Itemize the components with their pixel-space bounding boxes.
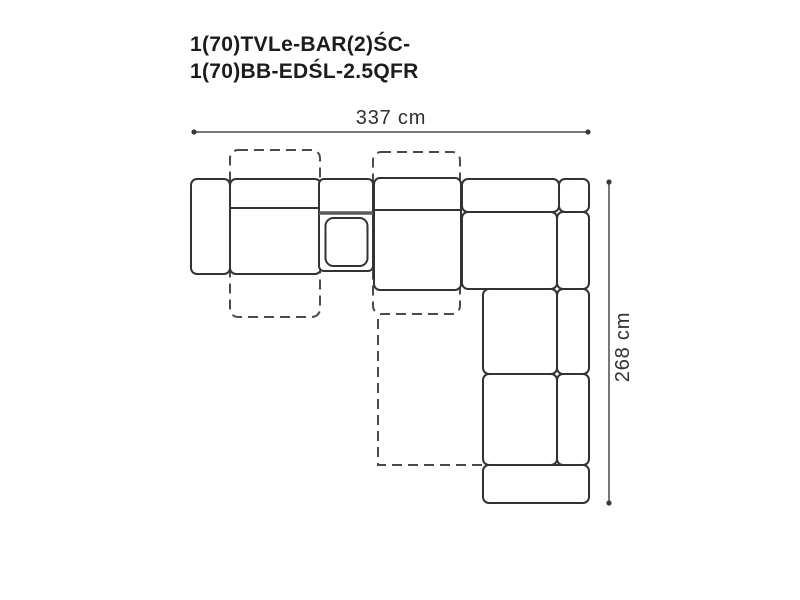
height-dimension xyxy=(606,179,611,505)
chaise-seat-2 xyxy=(483,374,557,465)
corner-backrest-right xyxy=(557,212,589,289)
height-dimension-start-dot xyxy=(606,179,611,184)
seat-module-1 xyxy=(230,179,321,274)
chaise-backrest-2 xyxy=(557,374,589,465)
left-armrest xyxy=(191,179,230,274)
chaise-seat-1 xyxy=(483,289,557,374)
corner-seat xyxy=(462,212,557,289)
chaise-backrest-1 xyxy=(557,289,589,374)
sofa-top-view: 337 cm 268 cm xyxy=(0,0,800,600)
sofa-layout-diagram: 1(70)TVLe-BAR(2)ŚC- 1(70)BB-EDŚL-2.5QFR xyxy=(0,0,800,600)
width-dimension xyxy=(191,129,590,134)
width-dimension-end-dot xyxy=(585,129,590,134)
bed-extension-dashed xyxy=(378,319,483,465)
sofa-modules xyxy=(191,178,589,503)
front-armrest xyxy=(483,465,589,503)
width-dimension-label: 337 cm xyxy=(356,107,426,129)
seat-module-2 xyxy=(374,178,461,290)
corner-backrest-top xyxy=(462,179,559,212)
corner-backrest-corner xyxy=(559,179,589,212)
bar-console-tray xyxy=(326,218,368,266)
height-dimension-end-dot xyxy=(606,500,611,505)
width-dimension-start-dot xyxy=(191,129,196,134)
height-dimension-label: 268 cm xyxy=(612,312,634,382)
